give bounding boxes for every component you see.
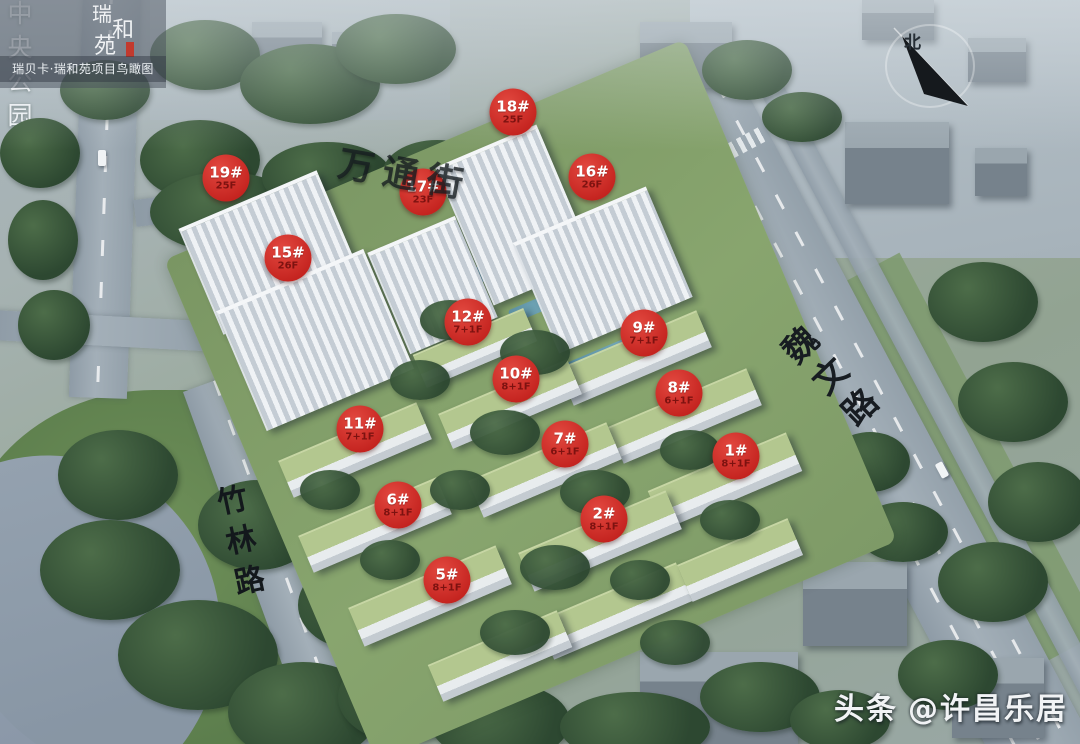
red-seal-icon <box>126 42 134 57</box>
marker-building-number: 11# <box>343 415 376 432</box>
compass: 北 <box>872 4 988 120</box>
building-marker-12: 12#7+1F <box>445 299 492 346</box>
marker-building-number: 19# <box>209 164 242 181</box>
marker-building-number: 5# <box>435 566 458 583</box>
marker-building-number: 15# <box>271 244 304 261</box>
marker-building-number: 8# <box>667 379 690 396</box>
marker-floor-count: 8+1F <box>432 583 461 594</box>
building-marker-8: 8#6+1F <box>656 370 703 417</box>
marker-building-number: 2# <box>592 505 615 522</box>
building-marker-1: 1#8+1F <box>713 433 760 480</box>
building-marker-18: 18#25F <box>490 89 537 136</box>
building-marker-7: 7#6+1F <box>542 421 589 468</box>
north-arrow-icon <box>872 4 988 120</box>
marker-floor-count: 8+1F <box>501 382 530 393</box>
marker-floor-count: 7+1F <box>453 325 482 336</box>
north-label: 北 <box>904 28 921 53</box>
marker-floor-count: 8+1F <box>383 508 412 519</box>
marker-floor-count: 8+1F <box>721 459 750 470</box>
marker-building-number: 1# <box>724 442 747 459</box>
marker-floor-count: 25F <box>216 181 237 192</box>
logo-char: 苑 <box>94 36 116 58</box>
marker-floor-count: 26F <box>582 180 603 191</box>
watermark-source: 头条 <box>834 692 898 727</box>
building-marker-10: 10#8+1F <box>493 356 540 403</box>
marker-building-number: 9# <box>632 319 655 336</box>
marker-floor-count: 26F <box>278 261 299 272</box>
watermark: 头条@许昌乐居 <box>834 684 1068 728</box>
building-marker-16: 16#26F <box>569 154 616 201</box>
aerial-rendering: 18#25F19#25F17#23F16#26F15#26F12#7+1F9#7… <box>0 0 1080 744</box>
watermark-account: @许昌乐居 <box>908 692 1068 727</box>
project-caption: 瑞贝卡·瑞和苑项目鸟瞰图 <box>0 56 166 82</box>
logo-calligraphy: 瑞 和 苑 <box>0 0 166 56</box>
building-marker-19: 19#25F <box>203 155 250 202</box>
marker-building-number: 6# <box>386 491 409 508</box>
building-marker-6: 6#8+1F <box>375 482 422 529</box>
building-marker-2: 2#8+1F <box>581 496 628 543</box>
marker-building-number: 16# <box>575 163 608 180</box>
building-marker-11: 11#7+1F <box>337 406 384 453</box>
marker-floor-count: 6+1F <box>550 447 579 458</box>
marker-building-number: 12# <box>451 308 484 325</box>
marker-building-number: 7# <box>553 430 576 447</box>
marker-building-number: 10# <box>499 365 532 382</box>
marker-floor-count: 8+1F <box>589 522 618 533</box>
marker-building-number: 18# <box>496 98 529 115</box>
marker-floor-count: 25F <box>503 115 524 126</box>
marker-floor-count: 7+1F <box>629 336 658 347</box>
building-marker-15: 15#26F <box>265 235 312 282</box>
logo-char: 瑞 <box>92 4 112 24</box>
building-marker-5: 5#8+1F <box>424 557 471 604</box>
project-logo-plate: 瑞 和 苑 瑞贝卡·瑞和苑项目鸟瞰图 <box>0 0 166 88</box>
marker-floor-count: 6+1F <box>664 396 693 407</box>
building-marker-9: 9#7+1F <box>621 310 668 357</box>
marker-floor-count: 7+1F <box>345 432 374 443</box>
